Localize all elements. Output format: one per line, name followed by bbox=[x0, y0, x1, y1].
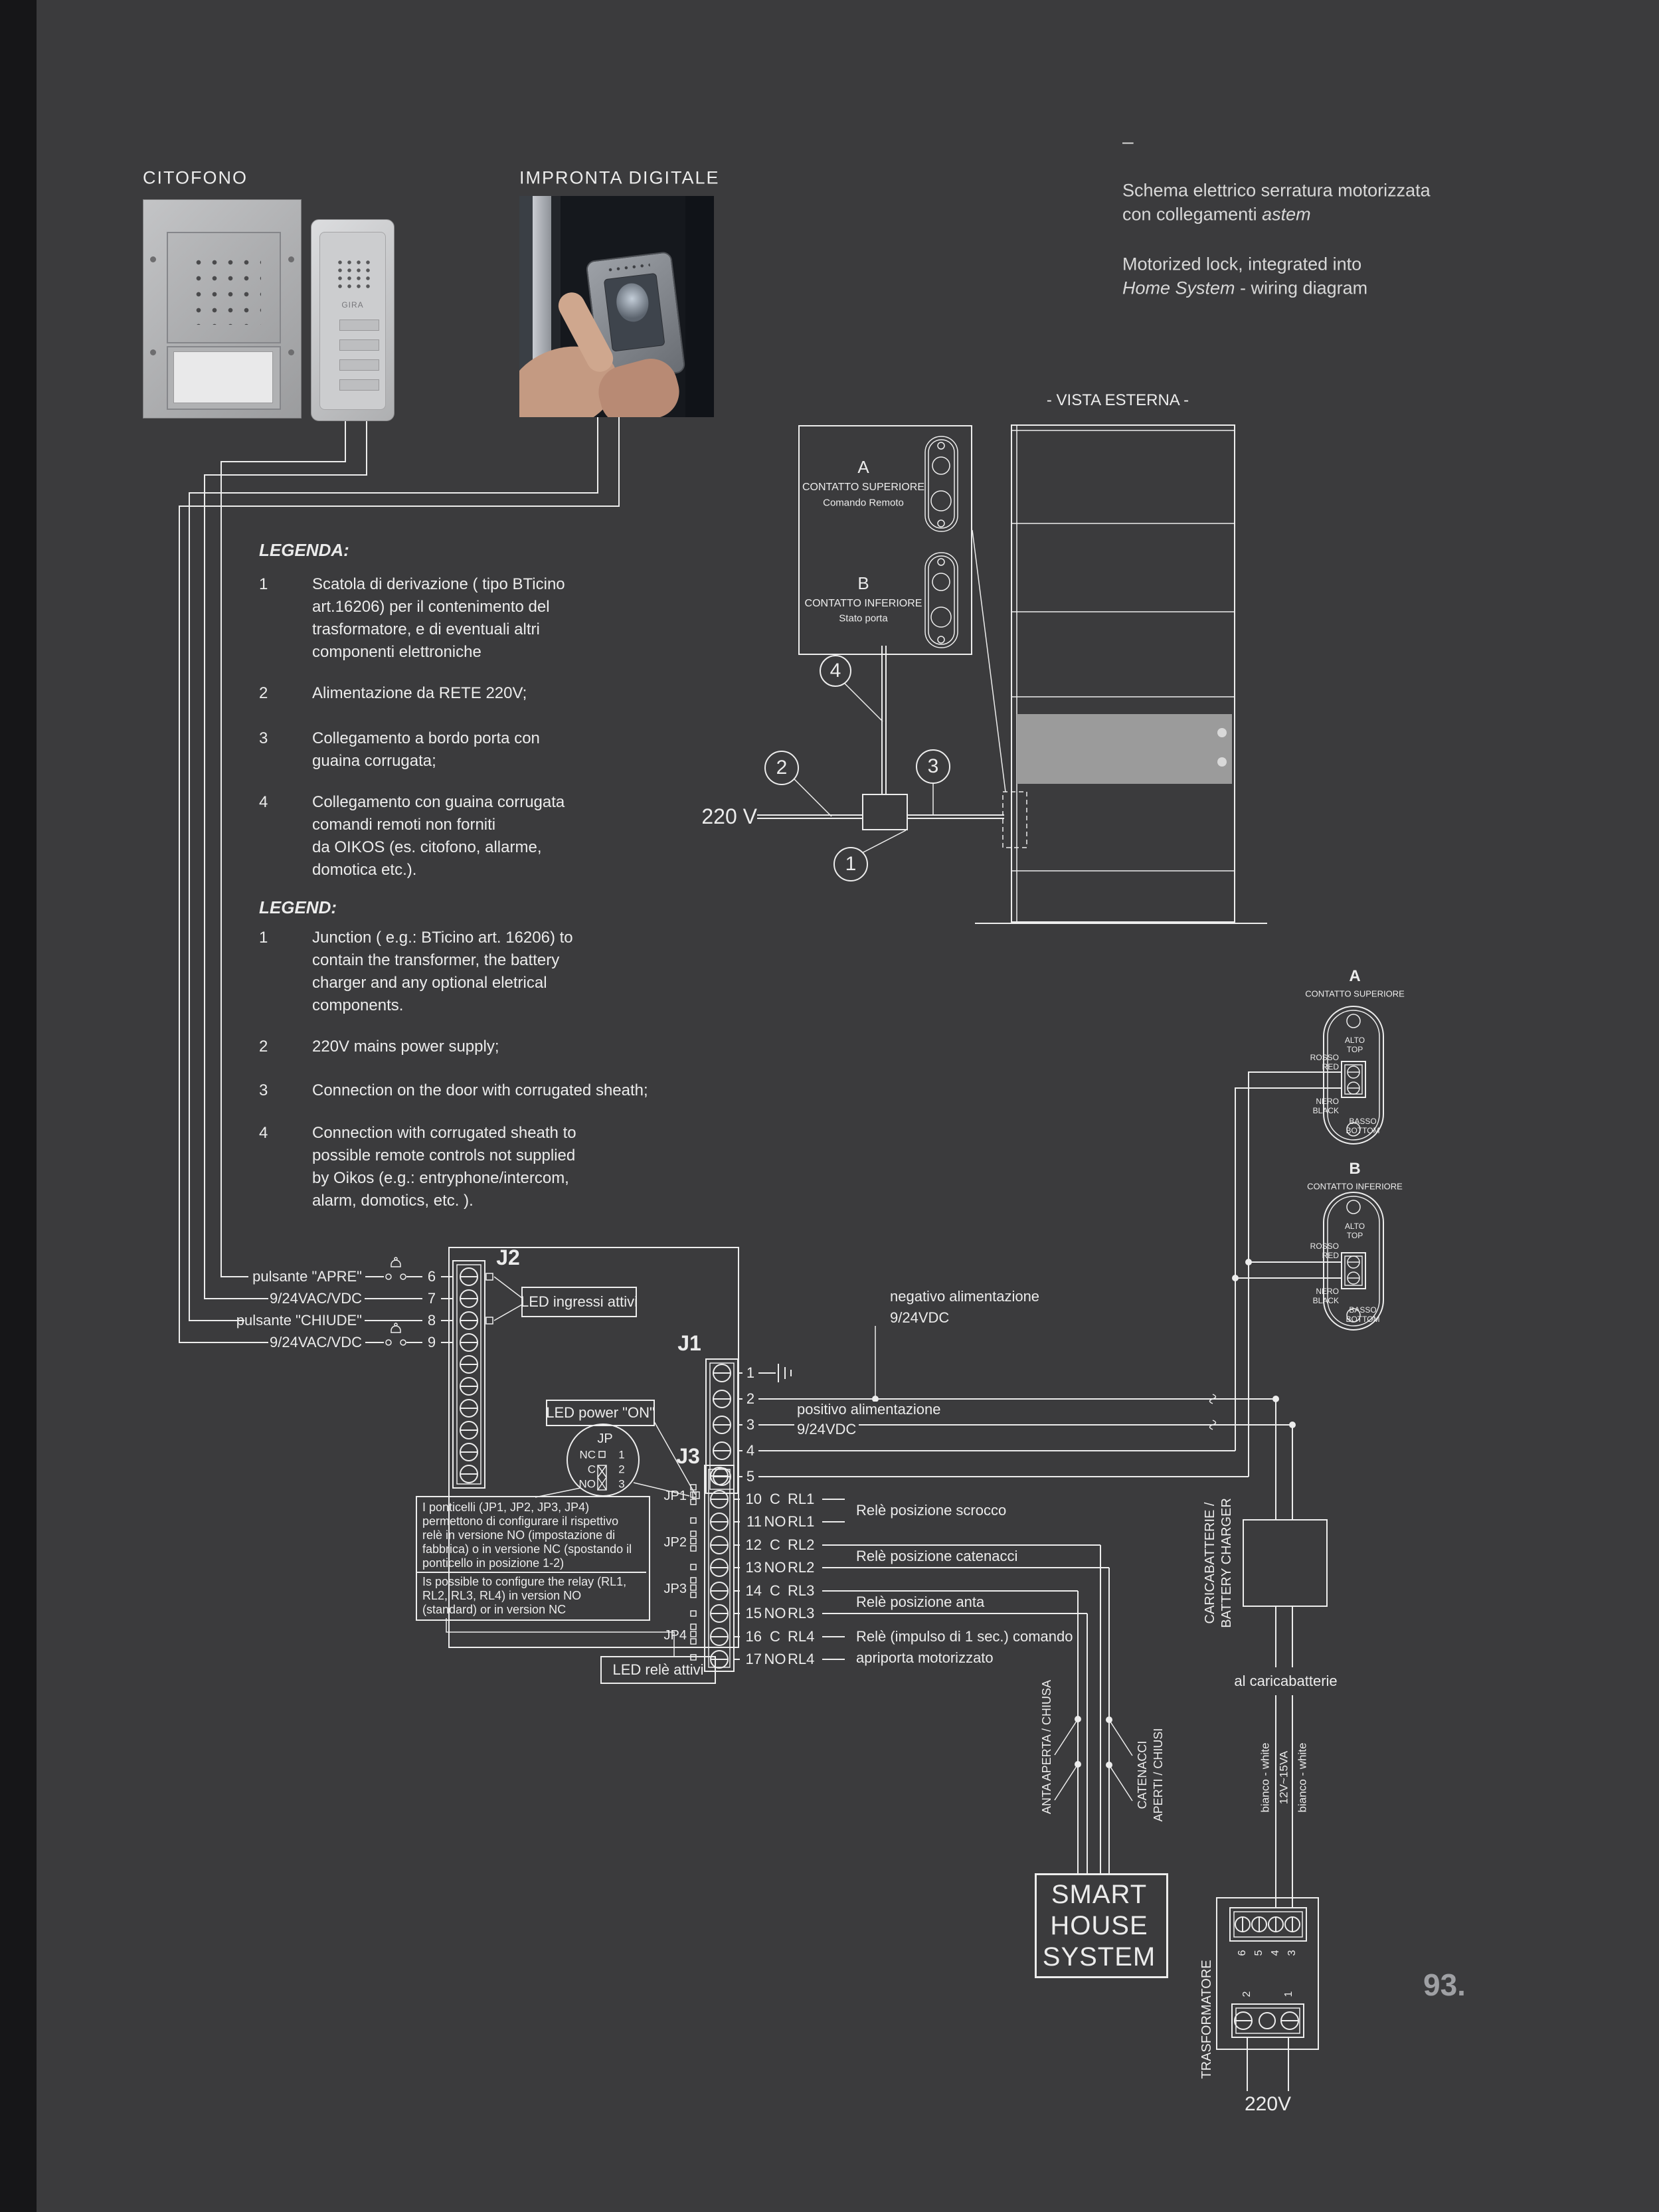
button-plate bbox=[167, 346, 281, 410]
title-it-line2-italic: astem bbox=[1262, 205, 1311, 225]
legend-item-3-n: 3 bbox=[259, 1083, 268, 1099]
pos-label-1: positivo alimentazione bbox=[794, 1402, 943, 1418]
handset-button bbox=[339, 359, 379, 371]
jp-no: NO bbox=[579, 1479, 596, 1490]
reader-glow bbox=[614, 282, 651, 323]
j1-pin-1: 1 bbox=[746, 1366, 754, 1380]
legenda-item-1-n: 1 bbox=[259, 577, 268, 593]
relay1-desc: Relè posizione scrocco bbox=[856, 1503, 1006, 1518]
lock-dashed-outline bbox=[1003, 792, 1027, 848]
legenda-text: da OIKOS (es. citofono, allarme, bbox=[312, 840, 541, 856]
relay2-desc: Relè posizione catenacci bbox=[856, 1549, 1017, 1564]
speaker-grid-icon bbox=[187, 250, 261, 325]
speaker-plate bbox=[167, 232, 281, 343]
title-it-line2: con collegamenti astem bbox=[1122, 206, 1311, 224]
basso-label: BASSO bbox=[1349, 1306, 1376, 1314]
jp-title: JP bbox=[597, 1432, 612, 1445]
relay3-desc: Relè posizione anta bbox=[856, 1595, 984, 1610]
lock-contact-dot-a bbox=[1217, 728, 1227, 737]
legenda-text: trasformatore, e di eventuali altri bbox=[312, 622, 540, 638]
j3-row-rl: RL3 bbox=[788, 1606, 814, 1621]
j3-label: J3 bbox=[676, 1445, 700, 1467]
legenda-text: comandi remoti non forniti bbox=[312, 817, 495, 833]
basso-label: BASSO bbox=[1349, 1117, 1376, 1125]
j3-row-c: C bbox=[770, 1538, 780, 1552]
row8-number: 8 bbox=[428, 1313, 436, 1328]
row7-number: 7 bbox=[428, 1291, 436, 1306]
legenda-text: Scatola di derivazione ( tipo BTicino bbox=[312, 577, 565, 593]
j3-row-rl: RL4 bbox=[788, 1652, 814, 1667]
title-dash: – bbox=[1122, 132, 1134, 152]
callout-2: 2 bbox=[776, 758, 788, 778]
screw-icon bbox=[288, 349, 294, 355]
contact-b-sub: Stato porta bbox=[839, 614, 887, 624]
legenda-text: Alimentazione da RETE 220V; bbox=[312, 686, 527, 701]
j1-pin-3: 3 bbox=[746, 1418, 754, 1432]
j1-pin-2: 2 bbox=[746, 1392, 754, 1406]
screw-icon bbox=[288, 256, 294, 262]
trasformatore-label: TRASFORMATORE bbox=[1200, 1960, 1213, 2078]
callout-1: 1 bbox=[845, 854, 857, 874]
j3-row-rl: RL2 bbox=[788, 1538, 814, 1552]
t-pin-3: 3 bbox=[1287, 1950, 1298, 1956]
note-it-line: fabbrica) o in versione NC (spostando il bbox=[422, 1542, 632, 1556]
t-pin-4: 4 bbox=[1270, 1950, 1281, 1956]
led-rele-label: LED relè attivi bbox=[613, 1663, 704, 1677]
citofono-panel-photo bbox=[143, 199, 302, 418]
legenda-item-3-n: 3 bbox=[259, 731, 268, 747]
jp-c: C bbox=[588, 1464, 596, 1475]
j3-row-c: C bbox=[770, 1492, 780, 1507]
legend-text: components. bbox=[312, 998, 403, 1014]
j3-row-rl: RL1 bbox=[788, 1515, 814, 1529]
neg-label-2: 9/24VDC bbox=[890, 1311, 949, 1325]
catalog-page: CITOFONO IMPRONTA DIGITALE GIRA bbox=[0, 0, 1659, 2212]
house-line: HOUSE bbox=[1050, 1912, 1148, 1939]
contact-a-title: CONTATTO SUPERIORE bbox=[802, 482, 924, 493]
jp1-label: JP1 bbox=[664, 1489, 687, 1503]
handset-speaker-icon bbox=[335, 258, 374, 289]
legend-text: by Oikos (e.g.: entryphone/intercom, bbox=[312, 1170, 569, 1186]
legend-item-2-n: 2 bbox=[259, 1039, 268, 1055]
j3-row-rl: RL3 bbox=[788, 1584, 814, 1598]
fingerprint-photo bbox=[519, 196, 714, 417]
callout-3: 3 bbox=[928, 757, 939, 777]
t-pin-5: 5 bbox=[1254, 1950, 1265, 1956]
legend-text: 220V mains power supply; bbox=[312, 1039, 499, 1055]
j1-pin-5: 5 bbox=[746, 1469, 754, 1484]
alto-label: ALTO bbox=[1345, 1036, 1365, 1044]
j3-row-n: 14 bbox=[746, 1584, 762, 1598]
battery-charger-box bbox=[1243, 1520, 1327, 1606]
red-label: RED bbox=[1322, 1063, 1339, 1071]
screw-icon bbox=[150, 349, 156, 355]
j3-row-n: 16 bbox=[746, 1629, 762, 1644]
note-divider bbox=[417, 1572, 646, 1573]
smart-line: SMART bbox=[1051, 1881, 1147, 1908]
legenda-text: domotica etc.). bbox=[312, 862, 416, 878]
j3-row-c: NO bbox=[764, 1652, 786, 1667]
handset-button bbox=[339, 379, 379, 391]
note-en-line: (standard) or in version NC bbox=[422, 1603, 626, 1617]
led-input-icon bbox=[486, 1273, 493, 1280]
alto-label: ALTO bbox=[1345, 1222, 1365, 1230]
contact-a-sub: Comando Remoto bbox=[823, 498, 904, 508]
title-it-line2-text: con collegamenti bbox=[1122, 205, 1262, 225]
nero-label: NERO bbox=[1316, 1287, 1339, 1295]
catenacci-label-2: APERTI / CHIUSI bbox=[1152, 1728, 1164, 1822]
j3-row-n: 13 bbox=[746, 1560, 762, 1575]
anta-label: ANTA APERTA / CHIUSA bbox=[1041, 1680, 1053, 1814]
impronta-heading: IMPRONTA DIGITALE bbox=[519, 169, 720, 187]
doorframe-shape bbox=[685, 196, 714, 417]
jp4-label: JP4 bbox=[664, 1629, 687, 1642]
j3-row-c: C bbox=[770, 1584, 780, 1598]
legend-item-4-n: 4 bbox=[259, 1125, 268, 1141]
junction-box bbox=[863, 794, 907, 830]
va-label: 12V~15VA bbox=[1278, 1751, 1290, 1805]
catenacci-label-1: CATENACCI bbox=[1136, 1741, 1148, 1809]
j3-row-n: 11 bbox=[746, 1515, 762, 1529]
lock-contact-dot-b bbox=[1217, 757, 1227, 767]
legend-text: possible remote controls not supplied bbox=[312, 1148, 575, 1164]
screw-icon bbox=[150, 256, 156, 262]
legenda-text: componenti elettroniche bbox=[312, 644, 481, 660]
j3-row-rl: RL4 bbox=[788, 1629, 814, 1644]
legenda-text: art.16206) per il contenimento del bbox=[312, 599, 550, 615]
row9-label: 9/24VAC/VDC bbox=[270, 1335, 362, 1350]
j3-row-c: NO bbox=[764, 1560, 786, 1575]
reader-holes bbox=[606, 262, 651, 274]
button-bell-icon bbox=[391, 1257, 400, 1267]
jp-3: 3 bbox=[618, 1479, 624, 1490]
row6-number: 6 bbox=[428, 1269, 436, 1284]
j3-row-rl: RL2 bbox=[788, 1560, 814, 1575]
led-ingressi-label: LED ingressi attivi bbox=[521, 1295, 638, 1309]
rosso-label: ROSSO bbox=[1310, 1054, 1339, 1061]
pos-label-2: 9/24VDC bbox=[794, 1422, 859, 1437]
led-power-label: LED power "ON" bbox=[546, 1406, 655, 1420]
door-lock-band bbox=[1017, 714, 1232, 784]
j1-label: J1 bbox=[677, 1333, 701, 1354]
contact-a-detail-letter: A bbox=[1349, 968, 1360, 984]
t-pin-2: 2 bbox=[1242, 1991, 1253, 1997]
note-it-line: ponticello in posizione 1-2) bbox=[422, 1556, 632, 1570]
contact-b-letter: B bbox=[857, 575, 869, 592]
title-en-line1: Motorized lock, integrated into bbox=[1122, 256, 1361, 274]
legend-title: LEGEND: bbox=[259, 899, 337, 916]
legend-text: Connection on the door with corrugated s… bbox=[312, 1083, 648, 1099]
title-en-line2-italic: Home System bbox=[1122, 278, 1235, 298]
legenda-item-4-n: 4 bbox=[259, 794, 268, 810]
jp2-label: JP2 bbox=[664, 1536, 687, 1549]
bottom-label: BOTTOM bbox=[1346, 1315, 1379, 1323]
t-pin-6: 6 bbox=[1237, 1950, 1248, 1956]
red-label: RED bbox=[1322, 1251, 1339, 1259]
j2-label: J2 bbox=[496, 1247, 520, 1268]
bottom-label: BOTTOM bbox=[1346, 1127, 1379, 1135]
220v-mid-label: 220 V bbox=[701, 806, 757, 827]
legend-item-1-n: 1 bbox=[259, 930, 268, 946]
j3-row-c: C bbox=[770, 1629, 780, 1644]
button-bell-icon bbox=[391, 1323, 400, 1333]
top-label: TOP bbox=[1347, 1046, 1363, 1054]
legend-text: charger and any optional eletrical bbox=[312, 975, 547, 991]
row6-label: pulsante "APRE" bbox=[252, 1269, 362, 1284]
j3-row-n: 15 bbox=[746, 1606, 762, 1621]
j3-row-n: 17 bbox=[746, 1652, 762, 1667]
contact-a-detail-title: CONTATTO SUPERIORE bbox=[1305, 990, 1405, 998]
system-line: SYSTEM bbox=[1043, 1944, 1156, 1970]
jp3-label: JP3 bbox=[664, 1582, 687, 1596]
jp-2: 2 bbox=[618, 1464, 624, 1475]
legend-text: alarm, domotics, etc. ). bbox=[312, 1193, 474, 1209]
citofono-handset-photo: GIRA bbox=[311, 219, 394, 421]
note-it-line: I ponticelli (JP1, JP2, JP3, JP4) bbox=[422, 1501, 632, 1515]
title-it-line1: Schema elettrico serratura motorizzata bbox=[1122, 182, 1431, 200]
legend-text: contain the transformer, the battery bbox=[312, 953, 559, 968]
legenda-item-2-n: 2 bbox=[259, 686, 268, 701]
neg-label-1: negativo alimentazione bbox=[890, 1289, 1039, 1304]
contact-b-detail-letter: B bbox=[1349, 1161, 1360, 1177]
bianco-white-label-1: bianco - white bbox=[1260, 1743, 1271, 1813]
note-it-line: permettono di configurare il rispettivo bbox=[422, 1515, 632, 1528]
contact-legend-leader bbox=[972, 530, 1005, 792]
black-label: BLACK bbox=[1313, 1297, 1339, 1305]
j3-row-rl: RL1 bbox=[788, 1492, 814, 1507]
nero-label: NERO bbox=[1316, 1097, 1339, 1105]
contact-b-title: CONTATTO INFERIORE bbox=[805, 599, 922, 609]
legend-text: Junction ( e.g.: BTicino art. 16206) to bbox=[312, 930, 573, 946]
al-caricabatterie-label: al caricabatterie bbox=[1231, 1673, 1340, 1689]
call-button bbox=[173, 351, 273, 403]
handset-brand: GIRA bbox=[341, 301, 363, 309]
jp-1: 1 bbox=[618, 1449, 624, 1461]
junction-box-area bbox=[757, 646, 1004, 881]
note-en-line: Is possible to configure the relay (RL1, bbox=[422, 1575, 626, 1589]
relay4-desc-1: Relè (impulso di 1 sec.) comando bbox=[856, 1629, 1073, 1644]
bianco-white-label-2: bianco - white bbox=[1297, 1743, 1308, 1813]
j3-row-c: NO bbox=[764, 1515, 786, 1529]
legenda-text: guaina corrugata; bbox=[312, 753, 436, 769]
j1-pin-4: 4 bbox=[746, 1443, 754, 1458]
contact-a-letter: A bbox=[857, 458, 869, 476]
row7-label: 9/24VAC/VDC bbox=[270, 1291, 362, 1306]
handset-button bbox=[339, 339, 379, 351]
jp-nc: NC bbox=[579, 1449, 596, 1461]
relay4-desc-2: apriporta motorizzato bbox=[856, 1651, 994, 1665]
j3-row-n: 12 bbox=[746, 1538, 762, 1552]
220v-bottom-label: 220V bbox=[1245, 2094, 1291, 2114]
jumper-note-box: I ponticelli (JP1, JP2, JP3, JP4) permet… bbox=[416, 1496, 650, 1621]
page-number: 93. bbox=[1423, 1970, 1466, 2000]
title-en-line2: Home System - wiring diagram bbox=[1122, 280, 1367, 298]
title-en-line2-text: - wiring diagram bbox=[1235, 278, 1368, 298]
legenda-title: LEGENDA: bbox=[259, 541, 349, 559]
callout-4: 4 bbox=[830, 661, 841, 681]
door-drawing bbox=[975, 425, 1267, 923]
note-it-line: relè in versione NO (impostazione di bbox=[422, 1528, 632, 1542]
t-pin-1: 1 bbox=[1284, 1991, 1294, 1997]
rosso-label: ROSSO bbox=[1310, 1242, 1339, 1250]
j3-row-n: 10 bbox=[746, 1492, 762, 1507]
row9-number: 9 bbox=[428, 1335, 436, 1350]
legend-text: Connection with corrugated sheath to bbox=[312, 1125, 576, 1141]
reader-screen bbox=[604, 273, 665, 352]
caricabatterie-label: CARICABATTERIE / bbox=[1203, 1503, 1217, 1624]
black-label: BLACK bbox=[1313, 1107, 1339, 1115]
citofono-heading: CITOFONO bbox=[143, 169, 248, 187]
legenda-text: Collegamento con guaina corrugata bbox=[312, 794, 565, 810]
ground-icon bbox=[778, 1364, 791, 1382]
note-en-line: RL2, RL3, RL4) in version NO bbox=[422, 1589, 626, 1603]
row8-label: pulsante "CHIUDE" bbox=[236, 1313, 362, 1328]
led-input-icon bbox=[486, 1317, 493, 1324]
legenda-text: Collegamento a bordo porta con bbox=[312, 731, 540, 747]
jp-headers bbox=[691, 1485, 696, 1660]
handset-button bbox=[339, 320, 379, 331]
contact-b-detail-title: CONTATTO INFERIORE bbox=[1307, 1182, 1403, 1191]
j3-row-c: NO bbox=[764, 1606, 786, 1621]
vista-esterna-label: - VISTA ESTERNA - bbox=[1047, 393, 1189, 409]
top-label: TOP bbox=[1347, 1232, 1363, 1240]
battery-charger-label: BATTERY CHARGER bbox=[1220, 1498, 1233, 1628]
